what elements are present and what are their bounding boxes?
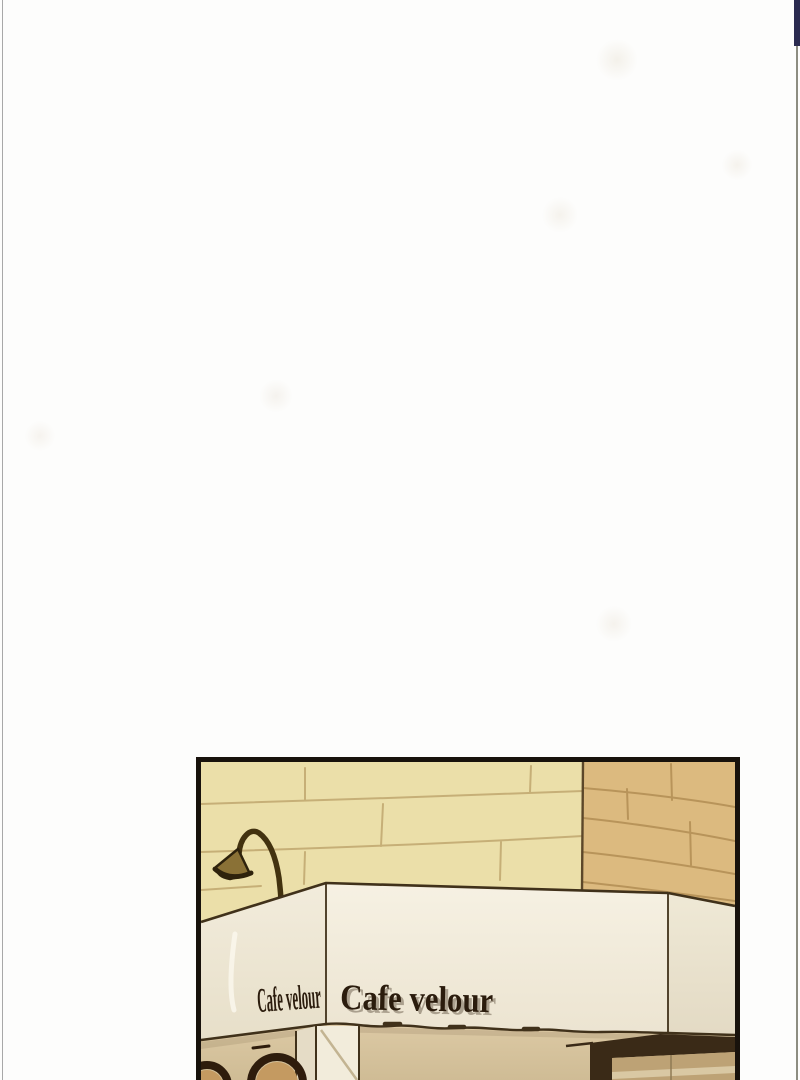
comic-panel[interactable]: Cafe velour Cafe velour Cafe velour bbox=[196, 757, 740, 1080]
page-edge-left-line bbox=[2, 0, 3, 1080]
cafe-illustration: Cafe velour Cafe velour Cafe velour bbox=[201, 762, 735, 1080]
sign-text-side: Cafe velour bbox=[256, 976, 322, 1019]
corner-pillar bbox=[296, 1026, 359, 1080]
top-right-accent-mark bbox=[794, 0, 800, 46]
wall-corner-line bbox=[582, 762, 583, 891]
page-edge-right-line bbox=[796, 0, 798, 1080]
webtoon-page: { "page": { "background": "#fdfdfc", "ed… bbox=[0, 0, 800, 1080]
sign-text-front: Cafe velour bbox=[340, 977, 494, 1020]
fascia-right-face bbox=[668, 893, 735, 1035]
